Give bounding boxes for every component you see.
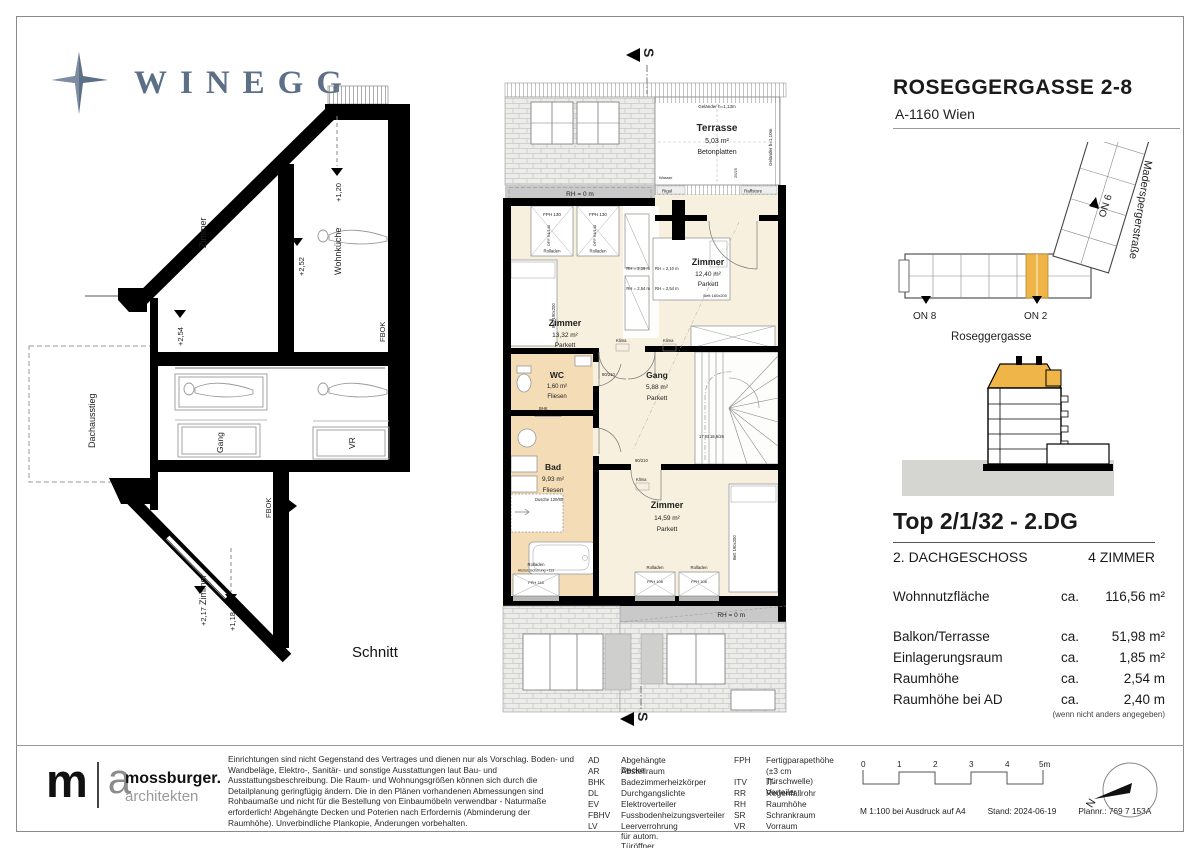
section-gang: Gang — [215, 432, 225, 453]
floor-plan: S Geländer h=1,13m Terrasse 5,03 m² Beto… — [495, 38, 795, 728]
leg-abbr: AD — [588, 755, 600, 765]
row2-ca: ca. — [1061, 650, 1093, 665]
mini-section — [897, 352, 1127, 502]
gang-floor: Parkett — [647, 395, 668, 402]
railing-right-label: Geländer h=1,10m — [768, 128, 773, 166]
rh0-top-label: RH = 0 m — [566, 191, 594, 198]
north-arrow: N — [1085, 752, 1175, 832]
logo-m: m — [46, 762, 88, 800]
scale-1: 1 — [897, 760, 902, 769]
row3-value: 2,54 m — [1093, 671, 1165, 686]
scale-ticks: 0 1 2 3 4 5m — [861, 760, 1051, 769]
terrace-water-label: Wasser — [659, 175, 673, 180]
fph108-label-2: FPH 108 — [691, 579, 708, 584]
klima-1: Klima — [616, 338, 627, 343]
unit-title: Top 2/1/32 - 2.DG — [893, 508, 1078, 535]
north-needle — [1094, 783, 1132, 799]
rolladen-label-4: Rolladen — [647, 565, 665, 570]
leg-def: Fussbodenheizungsverteiler — [621, 810, 725, 820]
leg-def: Raumhöhe — [766, 799, 807, 809]
leg-abbr: LV — [588, 821, 598, 831]
row3-label: Raumhöhe — [893, 671, 1061, 686]
level-217: +2,17 — [199, 607, 208, 626]
plan-date: Stand: 2024-06-19 — [988, 806, 1057, 816]
z3-name: Zimmer — [651, 500, 684, 510]
footer-divider — [16, 745, 1184, 746]
wc-floor: Fliesen — [547, 394, 566, 400]
klima-3: Klima — [636, 477, 647, 482]
unit-roomcount: 4 ZIMMER — [1088, 549, 1155, 565]
leg-def: Regenfallrohr — [766, 788, 816, 798]
leg-def: Vorraum — [766, 821, 797, 831]
leg-abbr: AR — [588, 766, 600, 776]
area-row-1: Balkon/Terrasse ca. 51,98 m² — [893, 629, 1165, 644]
on2-label: ON 2 — [1024, 311, 1048, 322]
scale-3: 3 — [969, 760, 974, 769]
section-railing — [328, 86, 388, 104]
scale-path — [863, 770, 1043, 784]
rolladen-label-5: Rolladen — [691, 565, 709, 570]
z2-floor: Parkett — [698, 281, 719, 288]
area-note: (wenn nicht anders angegeben) — [993, 710, 1165, 719]
section-wohnkueche: Wohnküche — [333, 228, 343, 275]
firm-subtitle: architekten — [125, 788, 198, 805]
terrace: Geländer h=1,13m Terrasse 5,03 m² Betonp… — [655, 97, 780, 185]
area-row-4: Raumhöhe bei AD ca. 2,40 m — [893, 692, 1165, 707]
roof-window-edge — [166, 539, 225, 599]
gang-area: 5,88 m² — [646, 384, 669, 391]
firm-name: mossburger. — [125, 770, 221, 787]
title-divider — [893, 128, 1180, 129]
area-value: 116,56 m² — [1093, 589, 1165, 604]
leg-abbr: VR — [734, 821, 746, 831]
fph118-label: FPH 118 — [528, 580, 544, 585]
plan-sheet: WINEGG Dachausstieg — [0, 0, 1200, 848]
site-plan: ON 8 ON 2 ON 6 Maderspergerstraße Rosegg… — [893, 142, 1183, 352]
leg-def: Schrankraum — [766, 810, 815, 820]
section-drawing: Dachausstieg — [25, 80, 465, 705]
row2-label: Einlagerungsraum — [893, 650, 1061, 665]
section-vr: VR — [347, 437, 357, 449]
rh254-label-1: RH = 2,54 m — [626, 286, 650, 291]
bett190-z1: Bett 190x200 — [551, 303, 556, 328]
leg-abbr: BHK — [588, 777, 605, 787]
row1-ca: ca. — [1061, 629, 1093, 644]
mini-building — [983, 356, 1113, 471]
fbok-upper: FBOK — [378, 322, 387, 342]
north-label: N — [1085, 797, 1099, 810]
ridge-band — [505, 83, 786, 97]
z1-floor: Parkett — [555, 342, 576, 349]
leg-abbr: FBHV — [588, 810, 610, 820]
z3-area: 14,59 m² — [654, 515, 680, 522]
section-marker-bottom-label: S — [635, 712, 651, 721]
rolladen-label-3: Rolladen — [528, 562, 546, 567]
dachausstieg-label: Dachausstieg — [87, 393, 97, 448]
leg-abbr: ITV — [734, 777, 747, 787]
leg-abbr: RR — [734, 788, 746, 798]
area-row-main: Wohnnutzfläche ca. 116,56 m² — [893, 589, 1165, 604]
level-252: +2,52 — [297, 257, 306, 276]
raffstore-label: Raffstore — [744, 189, 763, 194]
section-zimmer-top: Zimmer — [198, 218, 208, 249]
rh210-label: RH = 2,10 m — [655, 266, 679, 271]
scale-2: 2 — [933, 760, 938, 769]
leg-def: Elektroverteiler — [621, 799, 676, 809]
street-horizontal: Roseggergasse — [951, 331, 1032, 343]
area-row-2: Einlagerungsraum ca. 1,85 m² — [893, 650, 1165, 665]
fbok-lower: FBOK — [264, 498, 273, 518]
leg-def: Abstellraum — [621, 766, 665, 776]
on8-label: ON 8 — [913, 311, 937, 322]
project-title: ROSEGGERGASSE 2-8 — [893, 76, 1133, 100]
scale-4: 4 — [1005, 760, 1010, 769]
wc-area: 1,60 m² — [547, 384, 567, 390]
dusche-label: Dusche 120/80 — [535, 497, 564, 502]
terrace-area: 5,03 m² — [705, 138, 729, 145]
leg-abbr: FPH — [734, 755, 751, 765]
rh216-label: RH = 2,16 m — [626, 266, 650, 271]
door90-label: 90/210 — [635, 458, 648, 463]
bett190-z3: Bett 190x200 — [732, 535, 737, 560]
leg-def: Durchgangslichte — [621, 788, 685, 798]
wc-name: WC — [550, 370, 564, 380]
architect-firm: mossburger. architekten — [125, 770, 221, 805]
schnitt-caption: Schnitt — [352, 644, 398, 661]
row1-label: Balkon/Terrasse — [893, 629, 1061, 644]
print-scale: M 1:100 bei Ausdruck auf A4 — [860, 806, 966, 816]
project-city: A-1160 Wien — [895, 106, 975, 122]
z2-area: 12,40 m² — [695, 271, 721, 278]
bett160-label: Bett 160x200 — [703, 293, 727, 298]
rh0-bottom-label: RH = 0 m — [717, 612, 745, 619]
architect-logo: m a — [46, 762, 131, 808]
dff-label-1: DFF 94/140 — [546, 224, 551, 246]
scale-5: 5m — [1039, 760, 1051, 769]
z1-area: 13,32 m² — [552, 332, 578, 339]
railing-top-label: Geländer h=1,13m — [698, 104, 736, 109]
gang-name: Gang — [646, 370, 668, 380]
row4-value: 2,40 m — [1093, 692, 1165, 707]
unit-divider — [893, 542, 1155, 543]
leg-abbr: DL — [588, 788, 599, 798]
z3-floor: Parkett — [657, 526, 678, 533]
level-254: +2,54 — [176, 327, 185, 346]
rh254-label-2: RH = 2,54 m — [655, 286, 679, 291]
scale-bar: 0 1 2 3 4 5m — [858, 758, 1073, 792]
stairs-label: 17 St 18,6/26 — [699, 434, 725, 439]
row4-label: Raumhöhe bei AD — [893, 692, 1061, 707]
row1-value: 51,98 m² — [1093, 629, 1165, 644]
scale-0: 0 — [861, 760, 866, 769]
rolladen-label-1: Rolladen — [544, 249, 562, 254]
bad-floor: Fliesen — [543, 487, 564, 494]
rolladen-label-2: Rolladen — [590, 249, 608, 254]
fph130-label-2: FPH 130 — [589, 212, 607, 217]
absturz-label: Absturzsicherung +113 — [518, 569, 555, 573]
leg-def: Fertigparapethöhe — [766, 755, 834, 765]
fph130-label-1: FPH 130 — [543, 212, 561, 217]
z2-name: Zimmer — [692, 257, 725, 267]
unit-floor: 2. DACHGESCHOSS — [893, 549, 1028, 565]
bad-area: 9,93 m² — [542, 476, 565, 483]
bottom-roof: RH = 0 m — [503, 606, 786, 712]
rigol-label: Rigol — [662, 189, 672, 194]
dff-label-2: DFF 94/140 — [592, 224, 597, 246]
logo-bar — [97, 762, 99, 808]
level-120: +1,20 — [334, 183, 343, 202]
leg-abbr: SR — [734, 810, 746, 820]
leg-def: Badezimmerheizkörper — [621, 777, 706, 787]
row2-value: 1,85 m² — [1093, 650, 1165, 665]
leg-abbr: EV — [588, 799, 599, 809]
disclaimer-text: Einrichtungen sind nicht Gegenstand des … — [228, 754, 574, 828]
row3-ca: ca. — [1061, 671, 1093, 686]
leg-abbr: RH — [734, 799, 746, 809]
area-ca: ca. — [1061, 589, 1093, 604]
terrace-grid-label: 25/25 — [733, 167, 738, 178]
fph108-label-1: FPH 108 — [647, 579, 664, 584]
area-label: Wohnnutzfläche — [893, 589, 1061, 604]
section-marker-top-label: S — [641, 48, 657, 57]
level-118: +1,18 — [228, 612, 237, 631]
bad-name: Bad — [545, 462, 561, 472]
area-row-3: Raumhöhe ca. 2,54 m — [893, 671, 1165, 686]
klima-2: Klima — [663, 338, 674, 343]
leg-def: Leerverrohrung für autom. Türöffner — [621, 821, 678, 848]
terrace-name: Terrasse — [697, 123, 738, 134]
bhk-label: BHK — [539, 406, 548, 411]
terrace-floor: Betonplatten — [697, 149, 736, 156]
row4-ca: ca. — [1061, 692, 1093, 707]
door80-label: 80/210 — [602, 372, 615, 377]
